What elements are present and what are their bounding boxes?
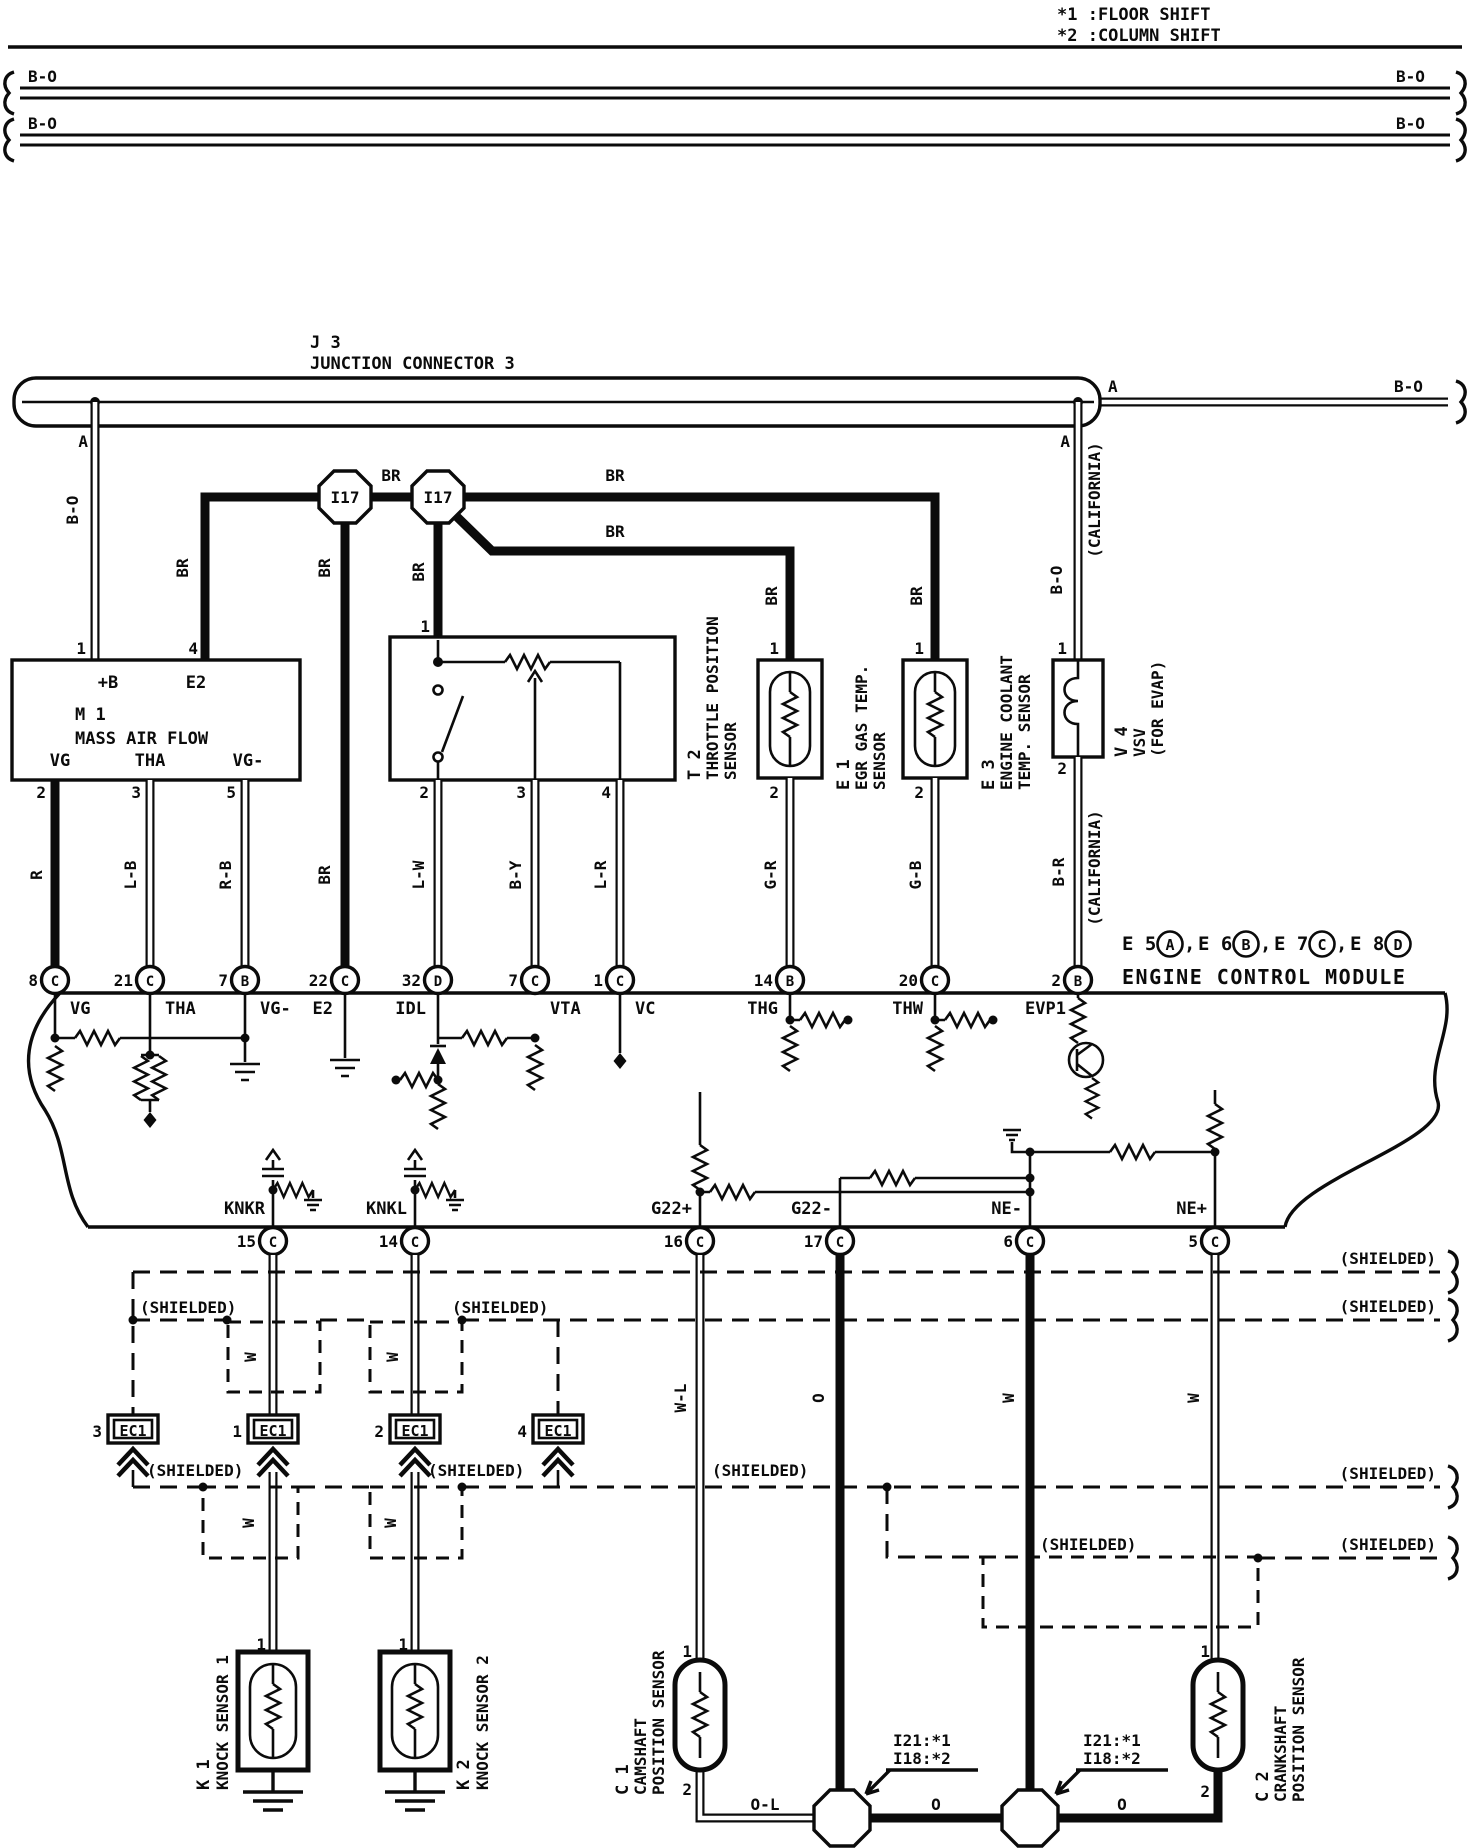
ecm-pin-label: VG- — [260, 999, 291, 1019]
pin-number: 3 — [516, 783, 526, 802]
pin-number: 1 — [1200, 1642, 1210, 1661]
ecm-pin-label: THA — [165, 999, 196, 1019]
m1-output-wires: R L-B R-B — [27, 780, 245, 968]
top-bus-wires: B-O B-O B-O B-O — [5, 67, 1465, 161]
shielded-label: (SHIELDED) — [1340, 1535, 1436, 1554]
ecm-pin-label: IDL — [395, 999, 426, 1019]
wire-color-label: B-R — [1049, 857, 1068, 886]
pin-g22-minus: C17 — [804, 1228, 854, 1255]
callout-line: I18:*2 — [1083, 1749, 1141, 1768]
ecm-bottom-pins: C15 C14 C16 C17 C6 C5 — [237, 1228, 1229, 1255]
pin-vta: C7 — [508, 967, 548, 994]
pin-evp1: B2 — [1051, 967, 1091, 994]
ecm-pin-label: VTA — [550, 999, 581, 1019]
callout-joint-2: I21:*1 I18:*2 — [1056, 1731, 1168, 1794]
shielded-label: (SHIELDED) — [428, 1461, 524, 1480]
pin-ne-plus: C5 — [1188, 1228, 1228, 1255]
m1-pin-vg-minus: VG- — [233, 751, 264, 771]
wire-color-label: W — [241, 1352, 260, 1362]
california-note: (CALIFORNIA) — [1085, 810, 1104, 926]
m1-pin-tha: THA — [135, 751, 166, 771]
pin-number: 1 — [232, 1422, 242, 1441]
e3-name-2: TEMP. SENSOR — [1015, 674, 1034, 790]
bottom-joints: I21:*1 I18:*2 I21:*1 I18:*2 — [814, 1731, 1168, 1846]
ec1-label: EC1 — [401, 1422, 428, 1440]
connector-ec1-4: EC14 — [517, 1415, 583, 1476]
connector-i17-right: I17 — [412, 471, 464, 523]
shield-network: (SHIELDED) (SHIELDED) (SHIELDED) (SHIELD… — [129, 1249, 1458, 1627]
pin-g22-plus: C16 — [664, 1228, 714, 1255]
pin-letter: C — [269, 1235, 277, 1251]
pin-number: 2 — [1200, 1782, 1210, 1801]
pin-number: 2 — [374, 1422, 384, 1441]
wire-color-label: W — [383, 1352, 402, 1362]
pin-ne-minus: C6 — [1003, 1228, 1043, 1255]
shield-continues-icon — [1448, 1537, 1457, 1579]
shield-chevron-icon — [400, 1449, 430, 1476]
ecm-name: ENGINE CONTROL MODULE — [1122, 965, 1406, 989]
wire-color-label: BR — [315, 865, 334, 885]
m1-id: M 1 — [75, 705, 106, 725]
wire-color-label: BR — [605, 522, 625, 541]
wire-continues-right-icon — [1456, 381, 1465, 423]
engine-control-module: VG THA VG- E2 IDL VTA VC THG THW EVP1 KN… — [29, 993, 1448, 1227]
wire-color-label: B-Y — [506, 860, 525, 889]
pin-vg-minus: B7 — [218, 967, 258, 994]
pin-number: 7 — [508, 971, 518, 990]
wire-color-label: BR — [907, 586, 926, 606]
pin-letter: C — [146, 974, 154, 990]
wire-color-label: O-L — [751, 1795, 780, 1814]
ecm-pin-label: VC — [635, 999, 655, 1019]
c2-name-2: POSITION SENSOR — [1289, 1657, 1308, 1802]
pin-number: 14 — [754, 971, 773, 990]
pin-number: 16 — [664, 1232, 683, 1251]
knock-sensor-k2: 1 K 2 KNOCK SENSOR 2 — [380, 1635, 492, 1810]
pin-number: 4 — [188, 639, 198, 658]
wire-color-label: B-O — [28, 114, 57, 133]
shielded-label: (SHIELDED) — [140, 1298, 236, 1317]
terminal-label: A — [78, 432, 88, 451]
wire-color-label: O — [1117, 1795, 1127, 1814]
pin-letter: C — [931, 974, 939, 990]
c1-name-2: POSITION SENSOR — [649, 1650, 668, 1795]
wire-continues-right-icon — [1456, 119, 1465, 161]
shielded-label: (SHIELDED) — [1340, 1464, 1436, 1483]
pin-letter: C — [1211, 1235, 1219, 1251]
wire-color-label: G-R — [761, 860, 780, 889]
callout-joint-1: I21:*1 I18:*2 — [866, 1731, 978, 1794]
pin-vc: C1 — [593, 967, 633, 994]
ecm-pin-label: NE- — [991, 1199, 1022, 1219]
wire-continues-right-icon — [1456, 72, 1465, 114]
shielded-label: (SHIELDED) — [712, 1461, 808, 1480]
connector-joint-icon — [1002, 1790, 1058, 1846]
wiring-diagram-page: *1 :FLOOR SHIFT *2 :COLUMN SHIFT B-O B-O… — [0, 0, 1472, 1848]
throttle-position-sensor-t2: 1 2 3 4 T 2 THROTTLE POSITION SENSOR — [390, 616, 740, 802]
pin-number: 3 — [92, 1422, 102, 1441]
callout-line: I18:*2 — [893, 1749, 951, 1768]
pin-number: 3 — [131, 783, 141, 802]
c1-id: C 1 — [613, 1764, 633, 1795]
e1-id: E 1 — [834, 759, 854, 790]
wire-color-label: L-R — [591, 860, 610, 889]
t2-id: T 2 — [685, 749, 705, 780]
connector-letter: B — [1241, 936, 1250, 954]
pin-number: 4 — [601, 783, 611, 802]
pin-number: 2 — [769, 783, 779, 802]
ecm-pin-label: KNKR — [224, 1199, 266, 1219]
pin-letter: C — [616, 974, 624, 990]
wire-color-label: R-B — [216, 860, 235, 889]
pin-number: 1 — [914, 639, 924, 658]
wire-color-label: L-W — [409, 860, 428, 889]
ecm-header: E 5 A , E 6 B , E 7 C , E 8 D ENGINE CON… — [1122, 932, 1411, 990]
pin-number: 2 — [914, 783, 924, 802]
e3-name-1: ENGINE COOLANT — [997, 655, 1016, 790]
shield-continues-icon — [1448, 1466, 1457, 1508]
ec1-label: EC1 — [259, 1422, 286, 1440]
connector-joint-icon — [814, 1790, 870, 1846]
pin-number: 2 — [1057, 759, 1067, 778]
pin-number: 17 — [804, 1232, 823, 1251]
pin-thg: B14 — [754, 967, 804, 994]
pin-number: 1 — [76, 639, 86, 658]
callout-line: I21:*1 — [1083, 1731, 1141, 1750]
note-column-shift: *2 :COLUMN SHIFT — [1057, 26, 1221, 46]
t2-name-2: SENSOR — [721, 722, 740, 780]
ecm-connector-id: E 8 — [1350, 933, 1384, 955]
mass-air-flow-sensor-m1: M 1 MASS AIR FLOW +B E2 VG THA VG- 1 4 2… — [12, 639, 300, 802]
terminal-label: A — [1060, 432, 1070, 451]
california-note: (CALIFORNIA) — [1085, 442, 1104, 558]
pin-letter: C — [1026, 1235, 1034, 1251]
wire-color-label: B-O — [1394, 377, 1423, 396]
separator: , — [1184, 933, 1195, 955]
junction-connector-j3: J 3 JUNCTION CONNECTOR 3 A B-O — [14, 333, 1465, 426]
wire-color-label: W — [1184, 1393, 1203, 1403]
wire-color-label: R — [27, 870, 46, 880]
pin-number: 2 — [1051, 971, 1061, 990]
ecm-pin-label: THW — [892, 999, 923, 1019]
legend-notes: *1 :FLOOR SHIFT *2 :COLUMN SHIFT — [8, 5, 1462, 47]
crankshaft-position-sensor-c2: 1 2 C 2 CRANKSHAFT POSITION SENSOR — [1193, 1642, 1308, 1802]
separator: , — [1260, 933, 1271, 955]
wire-color-label: B-O — [63, 496, 82, 525]
t2-output-wires: L-W B-Y L-R — [409, 780, 620, 968]
pin-letter: C — [51, 974, 59, 990]
ecm-pin-label: NE+ — [1176, 1199, 1207, 1219]
wire-color-label: B-O — [1047, 566, 1066, 595]
pin-number: 1 — [420, 617, 430, 636]
e1-name-2: SENSOR — [870, 732, 889, 790]
camshaft-position-sensor-c1: 1 2 C 1 CAMSHAFT POSITION SENSOR — [613, 1642, 725, 1799]
callout-line: I21:*1 — [893, 1731, 951, 1750]
terminal-label: A — [1108, 377, 1118, 396]
m1-pin-vg: VG — [50, 751, 70, 771]
shielded-label: (SHIELDED) — [1040, 1535, 1136, 1554]
pin-letter: B — [1074, 974, 1082, 990]
ecm-pin-label: KNKL — [366, 1199, 407, 1219]
ground-icon — [385, 1792, 445, 1810]
pin-number: 5 — [226, 783, 236, 802]
pin-number: 1 — [1057, 639, 1067, 658]
wire-color-label: B-O — [28, 67, 57, 86]
wire-color-label: L-B — [121, 860, 140, 889]
ecm-top-pins: C8 C21 B7 C22 D32 C7 C1 B14 C20 B2 — [28, 967, 1091, 994]
wiring-diagram: *1 :FLOOR SHIFT *2 :COLUMN SHIFT B-O B-O… — [0, 0, 1472, 1848]
separator: , — [1336, 933, 1347, 955]
pin-number: 5 — [1188, 1232, 1198, 1251]
pin-number: 2 — [419, 783, 429, 802]
ecm-pin-label: EVP1 — [1025, 999, 1066, 1019]
pin-letter: C — [836, 1235, 844, 1251]
wire-color-label: W — [239, 1518, 258, 1528]
c1-name-1: CAMSHAFT — [631, 1718, 650, 1795]
ecm-connector-id: E 6 — [1198, 933, 1232, 955]
pin-number: 7 — [218, 971, 228, 990]
pin-number: 20 — [899, 971, 918, 990]
pin-number: 21 — [114, 971, 133, 990]
j3-id: J 3 — [310, 333, 341, 353]
ec1-label: EC1 — [544, 1422, 571, 1440]
e1-name-1: EGR GAS TEMP. — [852, 665, 871, 790]
pin-letter: C — [341, 974, 349, 990]
wire-color-label: B-O — [1396, 67, 1425, 86]
ground-icon — [243, 1792, 303, 1810]
v4-id: V 4 — [1112, 726, 1132, 757]
wire-color-label: O — [931, 1795, 941, 1814]
pin-number: 8 — [28, 971, 38, 990]
pin-number: 4 — [517, 1422, 527, 1441]
c2-name-1: CRANKSHAFT — [1271, 1706, 1290, 1802]
pin-number: 6 — [1003, 1232, 1013, 1251]
pin-letter: C — [696, 1235, 704, 1251]
wire-color-label: BR — [409, 562, 428, 582]
wire-color-label: BR — [315, 558, 334, 578]
m1-pin-e2: E2 — [186, 673, 206, 693]
pin-letter: C — [411, 1235, 419, 1251]
pin-thw: C20 — [899, 967, 949, 994]
pin-number: 1 — [682, 1642, 692, 1661]
k1-id: K 1 — [194, 1759, 214, 1790]
idle-contact-icon — [434, 686, 443, 695]
connector-letter: A — [1165, 936, 1174, 954]
knock-sensor-k1: 1 K 1 KNOCK SENSOR 1 — [194, 1635, 308, 1810]
e3-id: E 3 — [979, 759, 999, 790]
callout-arrow-icon — [866, 1770, 890, 1794]
pin-vg: C8 — [28, 967, 68, 994]
note-floor-shift: *1 :FLOOR SHIFT — [1057, 5, 1211, 25]
wire-color-label: BR — [173, 558, 192, 578]
pin-number: 14 — [379, 1232, 398, 1251]
pin-letter: D — [434, 974, 442, 990]
vsv-evap-v4: 1 2 V 4 VSV (FOR EVAP) B-R (CALIFORNIA) — [1049, 639, 1167, 968]
ecm-torn-edge-left — [29, 993, 88, 1227]
pin-letter: B — [786, 974, 794, 990]
pin-number: 15 — [237, 1232, 256, 1251]
ec1-label: EC1 — [119, 1422, 146, 1440]
wire-continues-left-icon — [5, 119, 14, 161]
wire-color-label: BR — [381, 466, 401, 485]
shielded-label: (SHIELDED) — [147, 1461, 243, 1480]
ecm-connector-id: E 7 — [1274, 933, 1308, 955]
pin-letter: C — [531, 974, 539, 990]
k1-name: KNOCK SENSOR 1 — [213, 1655, 232, 1790]
pin-number: 22 — [309, 971, 328, 990]
i17-label: I17 — [331, 488, 360, 507]
wire-color-label: B-O — [1396, 114, 1425, 133]
shield-continues-icon — [1448, 1299, 1457, 1341]
connector-letter: D — [1393, 936, 1402, 954]
pin-number: 32 — [402, 971, 421, 990]
wire-color-label: W — [381, 1518, 400, 1528]
shielded-label: (SHIELDED) — [1340, 1297, 1436, 1316]
wire-continues-left-icon — [5, 72, 14, 114]
ecm-torn-edge-right — [1285, 993, 1447, 1227]
ecm-pin-label: E2 — [313, 999, 333, 1019]
k2-id: K 2 — [454, 1759, 474, 1790]
ecm-pin-label: THG — [747, 999, 778, 1019]
pin-e2: C22 — [309, 967, 359, 994]
pin-number: 1 — [593, 971, 603, 990]
pin-number: 1 — [398, 1635, 408, 1654]
i17-label: I17 — [424, 488, 453, 507]
ecm-pin-label: VG — [70, 999, 90, 1019]
v4-name-2: (FOR EVAP) — [1148, 661, 1167, 757]
shield-continues-icon — [1448, 1251, 1457, 1293]
t2-name-1: THROTTLE POSITION — [703, 616, 722, 780]
c2-id: C 2 — [1253, 1771, 1273, 1802]
ecm-pin-label: G22+ — [651, 1199, 692, 1219]
shielded-label: (SHIELDED) — [452, 1298, 548, 1317]
pin-number: 1 — [256, 1635, 266, 1654]
m1-pin-b: +B — [98, 673, 118, 693]
wire-color-label: G-B — [906, 860, 925, 889]
ecm-pin-label: G22- — [791, 1199, 832, 1219]
callout-arrow-icon — [1056, 1770, 1080, 1794]
pin-knkl: C14 — [379, 1228, 429, 1255]
j3-name: JUNCTION CONNECTOR 3 — [310, 354, 515, 374]
ecm-connector-id: E 5 — [1122, 933, 1156, 955]
v4-name-1: VSV — [1130, 728, 1149, 757]
shielded-label: (SHIELDED) — [1340, 1249, 1436, 1268]
wire-color-label: O — [809, 1393, 828, 1403]
connector-letter: C — [1317, 936, 1326, 954]
wire-color-label: W — [999, 1393, 1018, 1403]
pin-number: 1 — [769, 639, 779, 658]
pin-tha: C21 — [114, 967, 164, 994]
wire-color-label: BR — [605, 466, 625, 485]
pin-knkr: C15 — [237, 1228, 287, 1255]
pin-number: 2 — [36, 783, 46, 802]
engine-coolant-temp-sensor-e3: 1 2 E 3 ENGINE COOLANT TEMP. SENSOR G-B — [903, 639, 1034, 968]
j3-drop-wires: A B-O A (CALIFORNIA) B-O — [63, 402, 1104, 662]
m1-name: MASS AIR FLOW — [75, 729, 209, 749]
pin-number: 2 — [682, 1780, 692, 1799]
idle-contact-icon — [434, 753, 443, 762]
egr-gas-temp-sensor-e1: 1 2 E 1 EGR GAS TEMP. SENSOR G-R — [758, 639, 889, 968]
wire-color-label: BR — [762, 586, 781, 606]
pin-letter: B — [241, 974, 249, 990]
k2-name: KNOCK SENSOR 2 — [473, 1655, 492, 1790]
pin-idl: D32 — [402, 967, 452, 994]
wire-color-label: W-L — [671, 1384, 690, 1413]
shield-chevron-icon — [258, 1449, 288, 1476]
connector-i17-left: I17 — [319, 471, 371, 523]
